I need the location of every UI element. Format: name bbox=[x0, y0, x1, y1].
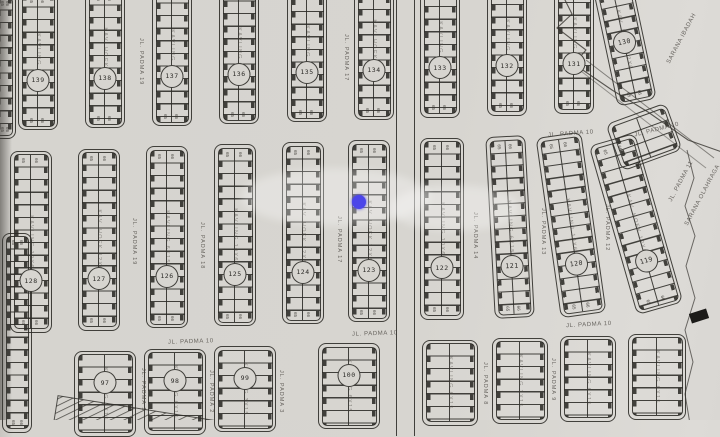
scan-edge-shadow bbox=[0, 0, 12, 420]
lot-number: 65 bbox=[96, 0, 101, 1]
plot-size-label: KAV. HOEK 12X6 bbox=[625, 194, 648, 255]
lot-number: 65 bbox=[21, 320, 26, 325]
lot-number: 66 bbox=[306, 312, 311, 317]
lot-number: 65 bbox=[89, 318, 94, 323]
block-number-badge: 128 bbox=[20, 269, 43, 292]
block-number-badge: 132 bbox=[496, 54, 519, 77]
block-number-badge: 130 bbox=[611, 29, 638, 56]
filled-marker-rect bbox=[689, 308, 709, 323]
lot-number: 65 bbox=[21, 158, 26, 163]
lot-number: 66 bbox=[617, 144, 623, 150]
plot-grid: 123KAV. HOEK 12X665656666 bbox=[352, 144, 387, 319]
street-label: JL. PADMA 18 bbox=[199, 222, 205, 269]
block-number-badge: 100 bbox=[338, 364, 361, 387]
lot-number: 66 bbox=[576, 101, 581, 106]
plot-block: 130KAV. HOEK 12X665656666 bbox=[591, 0, 657, 107]
plot-grid: 131KAVLING 10X665656666 bbox=[558, 0, 591, 110]
plot-grid: KAVLING 6X15 bbox=[564, 339, 613, 418]
estate-boundary-right bbox=[685, 150, 695, 420]
plot-grid: 124KAV. HOEK 12X665656666 bbox=[286, 146, 321, 321]
plot-size-label: KAV. HOEK 12X6 bbox=[300, 203, 306, 264]
lot-number: 66 bbox=[238, 314, 243, 319]
plot-size-label: KAVLING 6X15 bbox=[654, 350, 660, 403]
plot-grid: 136KAVLING 6X1565656666 bbox=[223, 0, 256, 121]
plot-grid: 100KAVLING 6X15 bbox=[322, 347, 377, 426]
lot-number: 65 bbox=[157, 316, 162, 321]
plot-block: KAVLING 6X15 bbox=[422, 340, 478, 426]
lot-number: 65 bbox=[293, 312, 298, 317]
plot-block: 100KAVLING 6X15 bbox=[318, 343, 380, 429]
block-number-badge: 98 bbox=[164, 369, 187, 392]
plot-size-label: KAVLING 10X6 bbox=[564, 198, 577, 252]
plot-block: KAVLING 6X15 bbox=[628, 334, 686, 420]
facility-label: SARANA IBADAH bbox=[666, 12, 698, 64]
lot-number: 66 bbox=[585, 302, 591, 308]
plot-block: 99KAVLING 3X15 bbox=[214, 346, 276, 432]
facility-label: SARANA OLAHRAGA bbox=[684, 164, 720, 227]
lot-number: 65 bbox=[11, 420, 16, 425]
block-number-badge: 127 bbox=[88, 267, 111, 290]
plot-size-label: KAV. HOEK 12X6 bbox=[366, 201, 372, 262]
plot-grid: 99KAVLING 3X15 bbox=[218, 350, 273, 429]
lot-number: 65 bbox=[89, 156, 94, 161]
plot-grid: 127KAV. HOEK 12X665656666 bbox=[82, 152, 117, 327]
block-number-badge: 99 bbox=[234, 367, 257, 390]
road-label: JL. PADMA 10 bbox=[168, 338, 214, 346]
block-number-badge: 138 bbox=[94, 67, 117, 90]
plot-grid: 122KAVLING 10X665656666 bbox=[424, 141, 461, 316]
plot-grid: 139KAVLING 10X665656666 bbox=[22, 0, 55, 127]
lot-number: 66 bbox=[34, 320, 39, 325]
lot-number: 65 bbox=[548, 143, 554, 149]
site-plan-map: 139KAVLING 10X665656666138KAV. HOEK 12X6… bbox=[0, 0, 720, 420]
plot-grid: 121KAVLING 6X1565656666 bbox=[489, 139, 531, 315]
lot-number: 65 bbox=[365, 108, 370, 113]
block-number-badge: 124 bbox=[292, 261, 315, 284]
block-number-badge: 139 bbox=[27, 69, 50, 92]
block-number-badge: 134 bbox=[363, 59, 386, 82]
plot-grid: 138KAV. HOEK 12X665656666 bbox=[89, 0, 122, 125]
plot-size-label: KAVLING 10X6 bbox=[28, 215, 34, 268]
plot-block: 138KAV. HOEK 12X665656666 bbox=[85, 0, 125, 128]
block-number-badge: 131 bbox=[563, 52, 586, 75]
plot-grid: 130KAV. HOEK 12X665656666 bbox=[595, 0, 652, 103]
street-label: JL. PADMA 13 bbox=[540, 208, 546, 255]
plot-block: 136KAVLING 6X1565656666 bbox=[219, 0, 259, 124]
block-number-badge: 125 bbox=[224, 263, 247, 286]
plot-block: 122KAVLING 10X665656666 bbox=[420, 138, 464, 320]
lot-number: 66 bbox=[445, 145, 450, 150]
plot-block: 134KAV. HOEK 12X665656666 bbox=[354, 0, 394, 120]
lot-number: 66 bbox=[309, 110, 314, 115]
block-number-badge: 97 bbox=[94, 371, 117, 394]
lot-number: 65 bbox=[225, 152, 230, 157]
lot-number: 66 bbox=[517, 305, 522, 310]
lot-number: 66 bbox=[508, 143, 513, 148]
street-label: JL. PADMA 14 bbox=[472, 212, 478, 259]
lot-number: 66 bbox=[107, 116, 112, 121]
plot-grid: 134KAV. HOEK 12X665656666 bbox=[358, 0, 391, 117]
plot-size-label: KAVLING 6X15 bbox=[585, 352, 591, 405]
lot-number: 65 bbox=[230, 112, 235, 117]
plot-grid: 135KAVLING 10X665656666 bbox=[291, 0, 324, 119]
street-label: JL. PADMA 12 bbox=[604, 204, 610, 251]
street-label: JL. PADMA 19 bbox=[138, 38, 144, 85]
lot-number: 65 bbox=[157, 154, 162, 159]
road-label: JL. PADMA 10 bbox=[566, 321, 612, 329]
plot-size-label: KAVLING 10X6 bbox=[232, 209, 238, 262]
plot-block: 127KAV. HOEK 12X665656666 bbox=[78, 149, 120, 331]
block-number-badge: 120 bbox=[563, 251, 589, 277]
plot-block: 133KAVLING 10X665656666 bbox=[420, 0, 460, 118]
lot-number: 66 bbox=[562, 141, 568, 147]
main-road bbox=[396, 0, 415, 436]
plot-block: 137KAVLING 10X665656666 bbox=[152, 0, 192, 126]
plot-block: 125KAVLING 10X665656666 bbox=[214, 144, 256, 326]
lot-number: 65 bbox=[565, 101, 570, 106]
lot-number: 66 bbox=[19, 420, 24, 425]
street-label: JL. PADMA 9 bbox=[550, 358, 556, 401]
lot-number: 65 bbox=[505, 305, 510, 310]
street-label: JL. PADMA 1 bbox=[140, 368, 146, 411]
plot-size-label: KAVLING 6X15 bbox=[164, 211, 170, 264]
plot-size-label: KAVLING 3X15 bbox=[517, 354, 523, 407]
plot-grid: 97KAVLING 3X15 bbox=[78, 354, 133, 433]
plot-grid: KAVLING 6X15 bbox=[426, 343, 475, 422]
lot-number: 65 bbox=[432, 145, 437, 150]
lot-number: 66 bbox=[660, 294, 666, 300]
lot-number: 65 bbox=[646, 298, 652, 304]
lot-number: 66 bbox=[509, 103, 514, 108]
street-label: JL. PADMA 17 bbox=[336, 216, 342, 263]
block-number-badge: 136 bbox=[228, 63, 251, 86]
lot-number: 66 bbox=[174, 114, 179, 119]
plot-size-label: KAVLING 6X15 bbox=[447, 356, 453, 409]
lot-number: 65 bbox=[359, 148, 364, 153]
lot-number: 65 bbox=[29, 0, 34, 3]
lot-number: 66 bbox=[241, 112, 246, 117]
plot-size-label: KAVLING 6X15 bbox=[506, 200, 515, 254]
lot-number: 66 bbox=[372, 148, 377, 153]
block-number-badge: 133 bbox=[429, 56, 452, 79]
lot-number: 65 bbox=[359, 310, 364, 315]
lot-number: 65 bbox=[571, 304, 577, 310]
lot-number: 66 bbox=[637, 89, 643, 95]
block-number-badge: 137 bbox=[161, 65, 184, 88]
lot-number: 66 bbox=[372, 310, 377, 315]
plot-block: 123KAV. HOEK 12X665656666 bbox=[348, 140, 390, 322]
block-number-badge: 135 bbox=[296, 61, 319, 84]
plot-block: KAVLING 3X15 bbox=[492, 338, 548, 424]
lot-number: 66 bbox=[238, 152, 243, 157]
street-label: JL. PADMA 17 bbox=[343, 34, 349, 81]
lot-number: 66 bbox=[34, 158, 39, 163]
plot-size-label: KAV. HOEK 12X6 bbox=[96, 209, 102, 270]
lot-number: 66 bbox=[107, 0, 112, 1]
street-label: JL. PADMA 11 bbox=[668, 160, 695, 203]
block-number-badge: 119 bbox=[632, 246, 660, 274]
plot-block: 135KAVLING 10X665656666 bbox=[287, 0, 327, 122]
lot-number: 66 bbox=[376, 108, 381, 113]
block-number-badge: 123 bbox=[358, 259, 381, 282]
plot-block: 97KAVLING 3X15 bbox=[74, 351, 136, 437]
plot-block: 131KAVLING 10X665656666 bbox=[554, 0, 594, 114]
plot-block: KAVLING 6X15 bbox=[560, 336, 616, 422]
lot-number: 65 bbox=[626, 92, 632, 98]
plot-size-label: KAVLING 10X6 bbox=[439, 202, 445, 255]
lot-number: 66 bbox=[102, 318, 107, 323]
plot-block: 98KAVLING 6X15 bbox=[144, 349, 206, 435]
street-label: JL. PADMA 19 bbox=[131, 218, 137, 265]
lot-number: 66 bbox=[40, 0, 45, 3]
plot-block: 132KAVLING 6X1565656666 bbox=[487, 0, 527, 116]
lot-number: 65 bbox=[29, 118, 34, 123]
lot-number: 66 bbox=[442, 105, 447, 110]
plot-grid: KAVLING 6X15 bbox=[632, 337, 683, 416]
plot-block: 139KAVLING 10X665656666 bbox=[18, 0, 58, 130]
lot-number: 65 bbox=[163, 114, 168, 119]
lot-number: 66 bbox=[170, 316, 175, 321]
street-label: JL. PADMA 8 bbox=[482, 362, 488, 405]
lot-number: 66 bbox=[19, 240, 24, 245]
plot-grid: 132KAVLING 6X1565656666 bbox=[491, 0, 524, 112]
lot-number: 66 bbox=[306, 150, 311, 155]
lot-number: 65 bbox=[431, 105, 436, 110]
plot-block: 124KAV. HOEK 12X665656666 bbox=[282, 142, 324, 324]
block-number-badge: 121 bbox=[500, 254, 524, 278]
lot-number: 65 bbox=[432, 307, 437, 312]
lot-number: 66 bbox=[40, 118, 45, 123]
lot-number: 66 bbox=[170, 154, 175, 159]
plot-grid: 137KAVLING 10X665656666 bbox=[156, 0, 189, 123]
lot-number: 66 bbox=[102, 156, 107, 161]
plot-grid: 125KAVLING 10X665656666 bbox=[218, 148, 253, 323]
lot-number: 65 bbox=[225, 314, 230, 319]
street-label: JL. PADMA 2 bbox=[208, 370, 214, 413]
plot-block: 121KAVLING 6X1565656666 bbox=[485, 135, 534, 319]
lot-number: 65 bbox=[496, 144, 501, 149]
plot-grid: 126KAVLING 6X1565656666 bbox=[150, 150, 185, 325]
block-number-badge: 126 bbox=[156, 265, 179, 288]
street-label: JL. PADMA 3 bbox=[278, 370, 284, 413]
block-number-badge: 122 bbox=[431, 256, 454, 279]
plot-block: 126KAVLING 6X1565656666 bbox=[146, 146, 188, 328]
lot-number: 65 bbox=[298, 110, 303, 115]
plot-grid: 133KAVLING 10X665656666 bbox=[424, 0, 457, 114]
road-label: JL. PADMA 10 bbox=[352, 330, 398, 338]
plot-grid: KAVLING 3X15 bbox=[496, 341, 545, 420]
lot-number: 66 bbox=[445, 307, 450, 312]
lot-number: 65 bbox=[498, 103, 503, 108]
lot-number: 65 bbox=[293, 150, 298, 155]
plot-grid: 98KAVLING 6X15 bbox=[148, 352, 203, 431]
lot-number: 65 bbox=[96, 116, 101, 121]
lot-number: 65 bbox=[603, 148, 609, 154]
selected-plot-marker bbox=[352, 195, 366, 209]
